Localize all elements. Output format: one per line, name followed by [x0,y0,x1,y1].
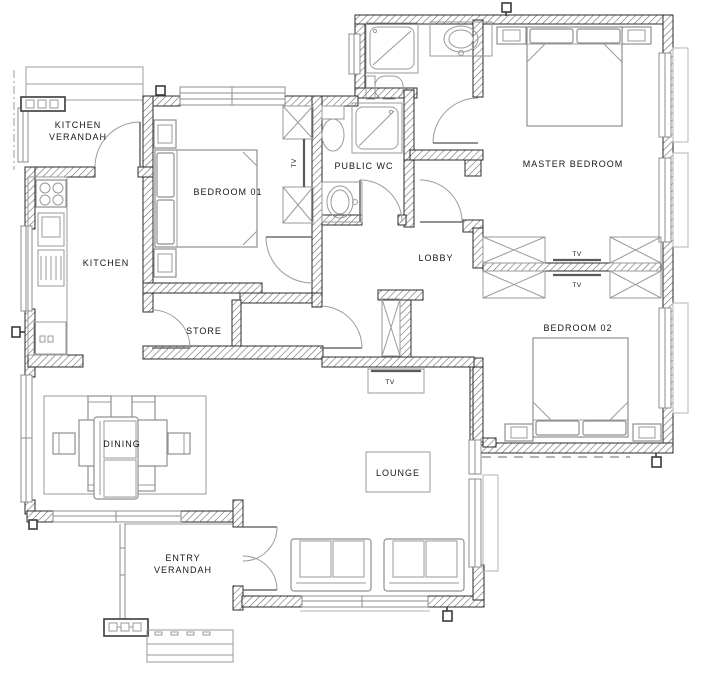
bed-master [497,27,651,126]
bed-bedroom01 [154,120,257,277]
room-label-lobby: LOBBY [418,253,453,263]
door-store [152,310,190,348]
tv-label: TV [572,251,581,258]
window-lounge-right-upper [469,440,481,474]
post-marker-master-top [502,3,511,16]
window-bedroom01-top [180,87,285,105]
wall-segment [480,443,673,453]
floor-plan: TV TV TV [0,0,705,677]
wall-segment [240,293,314,303]
door-entry-double [243,527,277,590]
entry-pillar [104,619,148,636]
wardrobe-master-right [610,237,661,263]
window-master-right-1 [659,48,688,142]
post-marker-lounge [443,607,452,621]
door-kitchen-verandah [95,122,140,167]
wall-segment [410,150,483,160]
window-ensuite-left [349,34,360,74]
post-marker [156,86,165,95]
wall-segment [28,355,83,367]
wall-segment [143,293,153,312]
loveseat-lounge [94,417,138,499]
wall-segment [465,160,481,176]
wall-segment [27,167,95,177]
bed-bedroom02 [505,338,661,441]
room-label-kitchen-verandah-2: VERANDAH [49,132,107,142]
tv-label: TV [572,282,581,289]
wardrobe-bedroom01-bottom [283,187,313,223]
wall-segment [232,300,241,350]
tv-unit-bedroom02: TV [553,275,601,289]
wall-segment [400,300,411,357]
wall-segment [322,357,474,367]
tv-label: TV [385,379,394,386]
wall-segment [233,500,243,527]
sofa-lounge-2 [384,539,464,591]
wall-segment [143,283,262,293]
window-lounge-bottom [300,596,430,611]
room-label-kitchen: KITCHEN [83,258,130,268]
tv-unit-lounge: TV [368,369,424,393]
post-marker-bedroom02 [652,453,661,467]
room-label-lounge: LOUNGE [376,468,420,478]
fixture-kitchen-exterior [12,327,25,337]
wall-segment [25,167,35,229]
wall-segment [312,293,322,307]
wall-segment [473,228,483,268]
window-dining-bottom [53,511,181,522]
window-bedroom02-right [659,303,688,413]
sofa-lounge-1 [291,539,371,591]
room-label-public-wc: PUBLIC WC [334,161,393,171]
tv-unit-bedroom01: TV [291,139,304,187]
tv-label: TV [291,158,298,167]
wall-segment [322,215,362,225]
furniture [28,22,661,591]
floor-plan-svg: TV TV TV [0,0,705,677]
window-dining-left [21,375,32,502]
door-master-bedroom [433,98,478,143]
wardrobe-bedroom02-right [610,271,661,298]
entry-verandah-structure [104,524,233,662]
window-lounge-right [469,475,498,571]
wardrobe-lobby [382,299,400,356]
wall-segment [483,438,496,447]
wardrobe-bedroom01-top [283,106,313,139]
room-label-entry-verandah-1: ENTRY [165,553,200,563]
tv-unit-master: TV [553,251,601,260]
wall-segment [483,263,661,271]
room-label-kitchen-verandah-1: KITCHEN [55,120,102,130]
room-label-bedroom01: BEDROOM 01 [193,187,262,197]
roof-outline-kitchen-verandah [26,67,143,100]
door-bedroom01 [266,237,312,283]
window-kitchen-left [21,226,32,311]
wardrobe-bedroom02-left [483,271,545,298]
wall-segment [143,96,153,293]
wall-segment [242,596,304,607]
room-label-store: STORE [186,326,222,336]
room-label-bedroom02: BEDROOM 02 [543,323,612,333]
door-public-wc [360,180,402,222]
door-vestibule [320,306,362,348]
wall-segment [473,565,484,600]
wall-segment [473,367,483,442]
room-label-entry-verandah-2: VERANDAH [154,565,212,575]
verandah-top-railing [21,97,65,111]
wardrobe-master-left [483,237,545,263]
entry-steps [147,630,233,662]
room-label-dining: DINING [103,439,141,449]
window-master-right-2 [659,153,688,247]
door-bedroom02-lobby [420,180,462,222]
room-label-master-bedroom: MASTER BEDROOM [523,159,624,169]
wall-segment [138,167,153,177]
post-marker-dining [29,520,37,529]
